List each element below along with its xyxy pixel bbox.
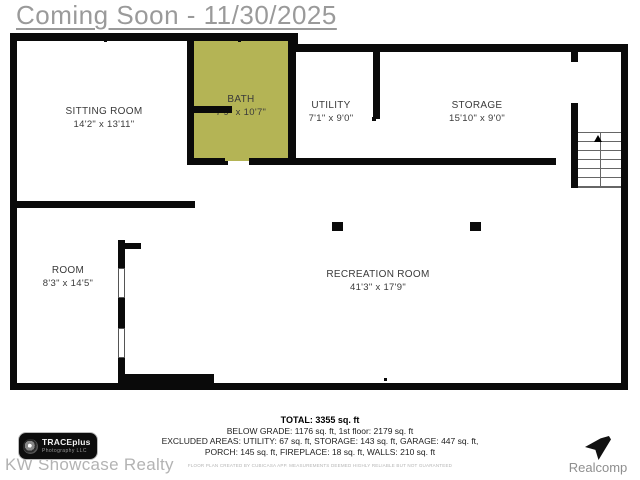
room-label-room: ROOM 8'3" x 14'5" (43, 264, 93, 290)
wall-bath-bottom-left (187, 158, 225, 165)
room-dims: 14'2" x 13'11" (66, 118, 143, 131)
wall-bath-left (187, 40, 194, 165)
total-area: TOTAL: 3355 sq. ft (0, 415, 640, 426)
door-marker (372, 117, 376, 121)
wall-bath-utility-divider (288, 40, 296, 165)
room-label-utility: UTILITY 7'1" x 9'0" (309, 99, 354, 125)
door-marker (238, 39, 241, 42)
door-marker (224, 161, 228, 165)
realcomp-arrow-icon (585, 436, 611, 460)
wall-outer-bottom (10, 383, 628, 390)
room-label-recreation: RECREATION ROOM 41'3" x 17'9" (326, 268, 429, 294)
wall-bath-stub (187, 106, 232, 113)
camera-icon (23, 439, 38, 454)
door-marker (384, 378, 387, 381)
door-marker (93, 203, 97, 207)
support-post-right (470, 222, 481, 231)
wall-stair-top-stub (571, 51, 578, 62)
room-dims: 7'1" x 9'0" (309, 112, 354, 125)
wall-utility-storage-bottom (249, 158, 556, 165)
photographer-subtitle: Photography LLC (42, 449, 91, 454)
room-label-sitting: SITTING ROOM 14'2" x 13'11" (66, 105, 143, 131)
photographer-logo: TRACEplus Photography LLC (18, 432, 98, 460)
room-dims: 15'10" x 9'0" (449, 112, 505, 125)
room-dims: 8'3" x 14'5" (43, 277, 93, 290)
room-name: UTILITY (309, 99, 354, 112)
room-name: SITTING ROOM (66, 105, 143, 118)
room-label-storage: STORAGE 15'10" x 9'0" (449, 99, 505, 125)
room-name: BATH (216, 93, 266, 106)
room-dims: 41'3" x 17'9" (326, 281, 429, 294)
mls-logo: Realcomp (562, 436, 634, 475)
wall-sitting-bottom (10, 201, 195, 208)
room-door-upper (118, 268, 125, 298)
room-door-lower (118, 328, 125, 358)
room-name: ROOM (43, 264, 93, 277)
wall-stairwell (571, 103, 578, 188)
stairs-up-arrow-icon (594, 135, 602, 142)
room-name: STORAGE (449, 99, 505, 112)
wall-room-stub (125, 243, 141, 249)
page-title: Coming Soon - 11/30/2025 (16, 0, 337, 31)
staircase (578, 132, 621, 188)
wall-utility-storage-divider (373, 51, 380, 119)
mls-name: Realcomp (562, 460, 634, 475)
room-name: RECREATION ROOM (326, 268, 429, 281)
wall-outer-top-left (10, 33, 298, 41)
door-marker (104, 39, 107, 42)
support-post-left (332, 222, 343, 231)
wall-outer-left (10, 33, 17, 390)
wall-bottom-thick-segment (118, 374, 214, 384)
floor-plan-page: Coming Soon - 11/30/2025 SITTING ROOM (0, 0, 640, 480)
photographer-name: TRACEplus (42, 438, 91, 447)
wall-outer-right (621, 44, 628, 390)
